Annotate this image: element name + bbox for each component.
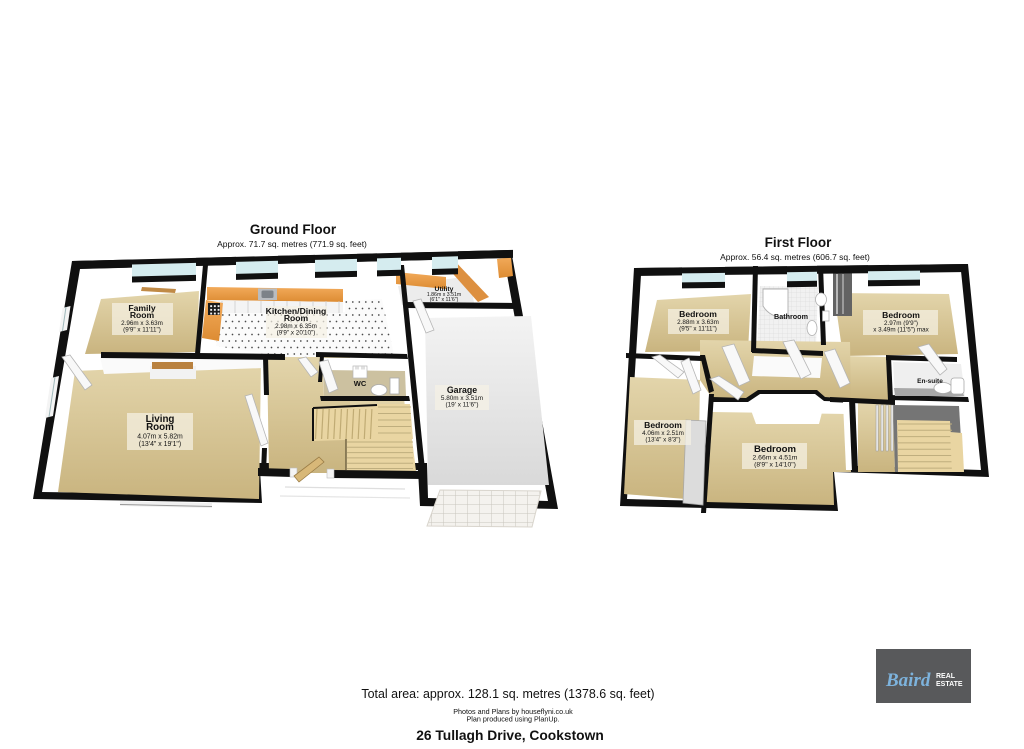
svg-text:Room: Room [146, 422, 174, 433]
svg-text:(13'4" x 8'3"): (13'4" x 8'3") [645, 437, 680, 444]
svg-text:Garage: Garage [447, 385, 477, 395]
svg-text:Approx. 71.7 sq. metres (771.9: Approx. 71.7 sq. metres (771.9 sq. feet) [217, 239, 367, 249]
svg-text:Bedroom: Bedroom [644, 420, 682, 430]
svg-text:(13'4" x 19'1"): (13'4" x 19'1") [139, 441, 181, 448]
svg-text:(9'9" x 20'10"): (9'9" x 20'10") [277, 330, 316, 337]
svg-text:ESTATE: ESTATE [936, 681, 963, 688]
svg-text:26 Tullagh Drive, Cookstown: 26 Tullagh Drive, Cookstown [416, 728, 604, 743]
svg-text:Room: Room [130, 310, 155, 320]
svg-text:Bedroom: Bedroom [882, 310, 920, 320]
svg-text:En-suite: En-suite [917, 378, 943, 385]
svg-text:Bathroom: Bathroom [774, 312, 808, 321]
svg-text:Approx. 56.4 sq. metres (606.7: Approx. 56.4 sq. metres (606.7 sq. feet) [720, 252, 870, 262]
svg-text:Ground Floor: Ground Floor [250, 222, 337, 237]
svg-text:First Floor: First Floor [765, 235, 832, 250]
svg-text:REAL: REAL [936, 673, 956, 680]
svg-text:(9'9" x 11'11"): (9'9" x 11'11") [123, 327, 161, 334]
svg-text:WC: WC [354, 379, 367, 388]
svg-text:Bedroom: Bedroom [754, 444, 796, 455]
svg-text:Room: Room [284, 313, 309, 323]
svg-text:4.07m x 5.82m: 4.07m x 5.82m [137, 433, 183, 440]
svg-text:(9'5" x 11'11"): (9'5" x 11'11") [679, 326, 717, 333]
svg-text:x 3.49m (11'5") max: x 3.49m (11'5") max [873, 327, 929, 334]
svg-text:Bedroom: Bedroom [679, 309, 717, 319]
svg-text:Plan produced using PlanUp.: Plan produced using PlanUp. [466, 715, 559, 724]
svg-text:Baird: Baird [885, 670, 931, 691]
svg-text:Total area: approx. 128.1 sq.: Total area: approx. 128.1 sq. metres (13… [361, 687, 654, 701]
svg-text:(6'1" x 11'6"): (6'1" x 11'6") [430, 297, 459, 303]
svg-text:(19' x 11'6"): (19' x 11'6") [445, 402, 478, 409]
svg-text:(8'9" x 14'10"): (8'9" x 14'10") [754, 461, 796, 468]
